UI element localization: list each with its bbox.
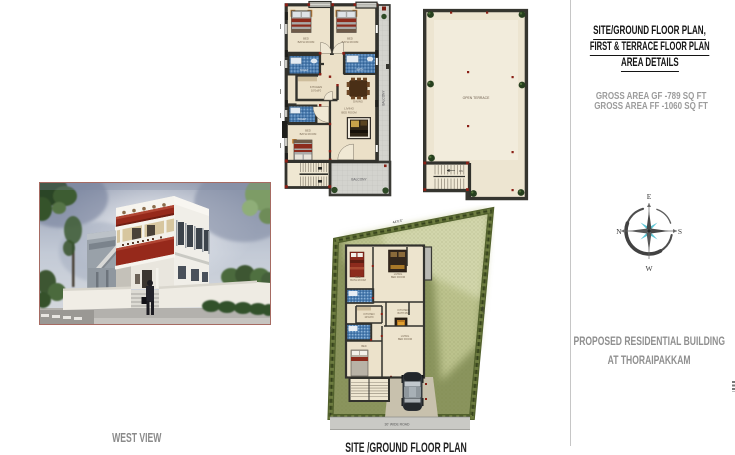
svg-text:BED ROOM: BED ROOM [391,275,405,279]
svg-text:BATH ROOM: BATH ROOM [342,40,359,44]
svg-text:10'0x8'0: 10'0x8'0 [364,316,374,319]
svg-text:BED ROOM: BED ROOM [341,110,357,114]
svg-text:BATH ROOM: BATH ROOM [298,40,315,44]
svg-text:DN: DN [459,169,463,173]
svg-text:BATH RM: BATH RM [397,312,408,315]
svg-text:BATH ROOM: BATH ROOM [350,278,366,282]
svg-text:30'0": 30'0" [330,325,334,333]
svg-text:30' WIDE ROAD: 30' WIDE ROAD [385,423,411,427]
svg-text:TOILET: TOILET [297,117,306,121]
svg-text:BALCONY: BALCONY [351,178,367,182]
svg-text:DINING: DINING [353,100,363,104]
svg-text:BATH ROOM: BATH ROOM [300,132,317,136]
svg-text:S: S [678,227,682,236]
svg-text:N: N [616,227,622,236]
svg-text:BATH: BATH [357,68,364,72]
svg-text:10'0x8'0: 10'0x8'0 [311,89,322,93]
svg-text:W: W [645,264,653,273]
svg-text:OPEN TERRACE: OPEN TERRACE [463,96,490,100]
svg-text:E: E [647,192,652,201]
svg-text:BED: BED [361,344,366,348]
svg-text:44'0.5": 44'0.5" [392,218,404,224]
svg-text:BALCONY: BALCONY [382,90,386,106]
svg-text:TOILET: TOILET [299,68,308,72]
svg-text:BED ROOM: BED ROOM [398,337,412,341]
